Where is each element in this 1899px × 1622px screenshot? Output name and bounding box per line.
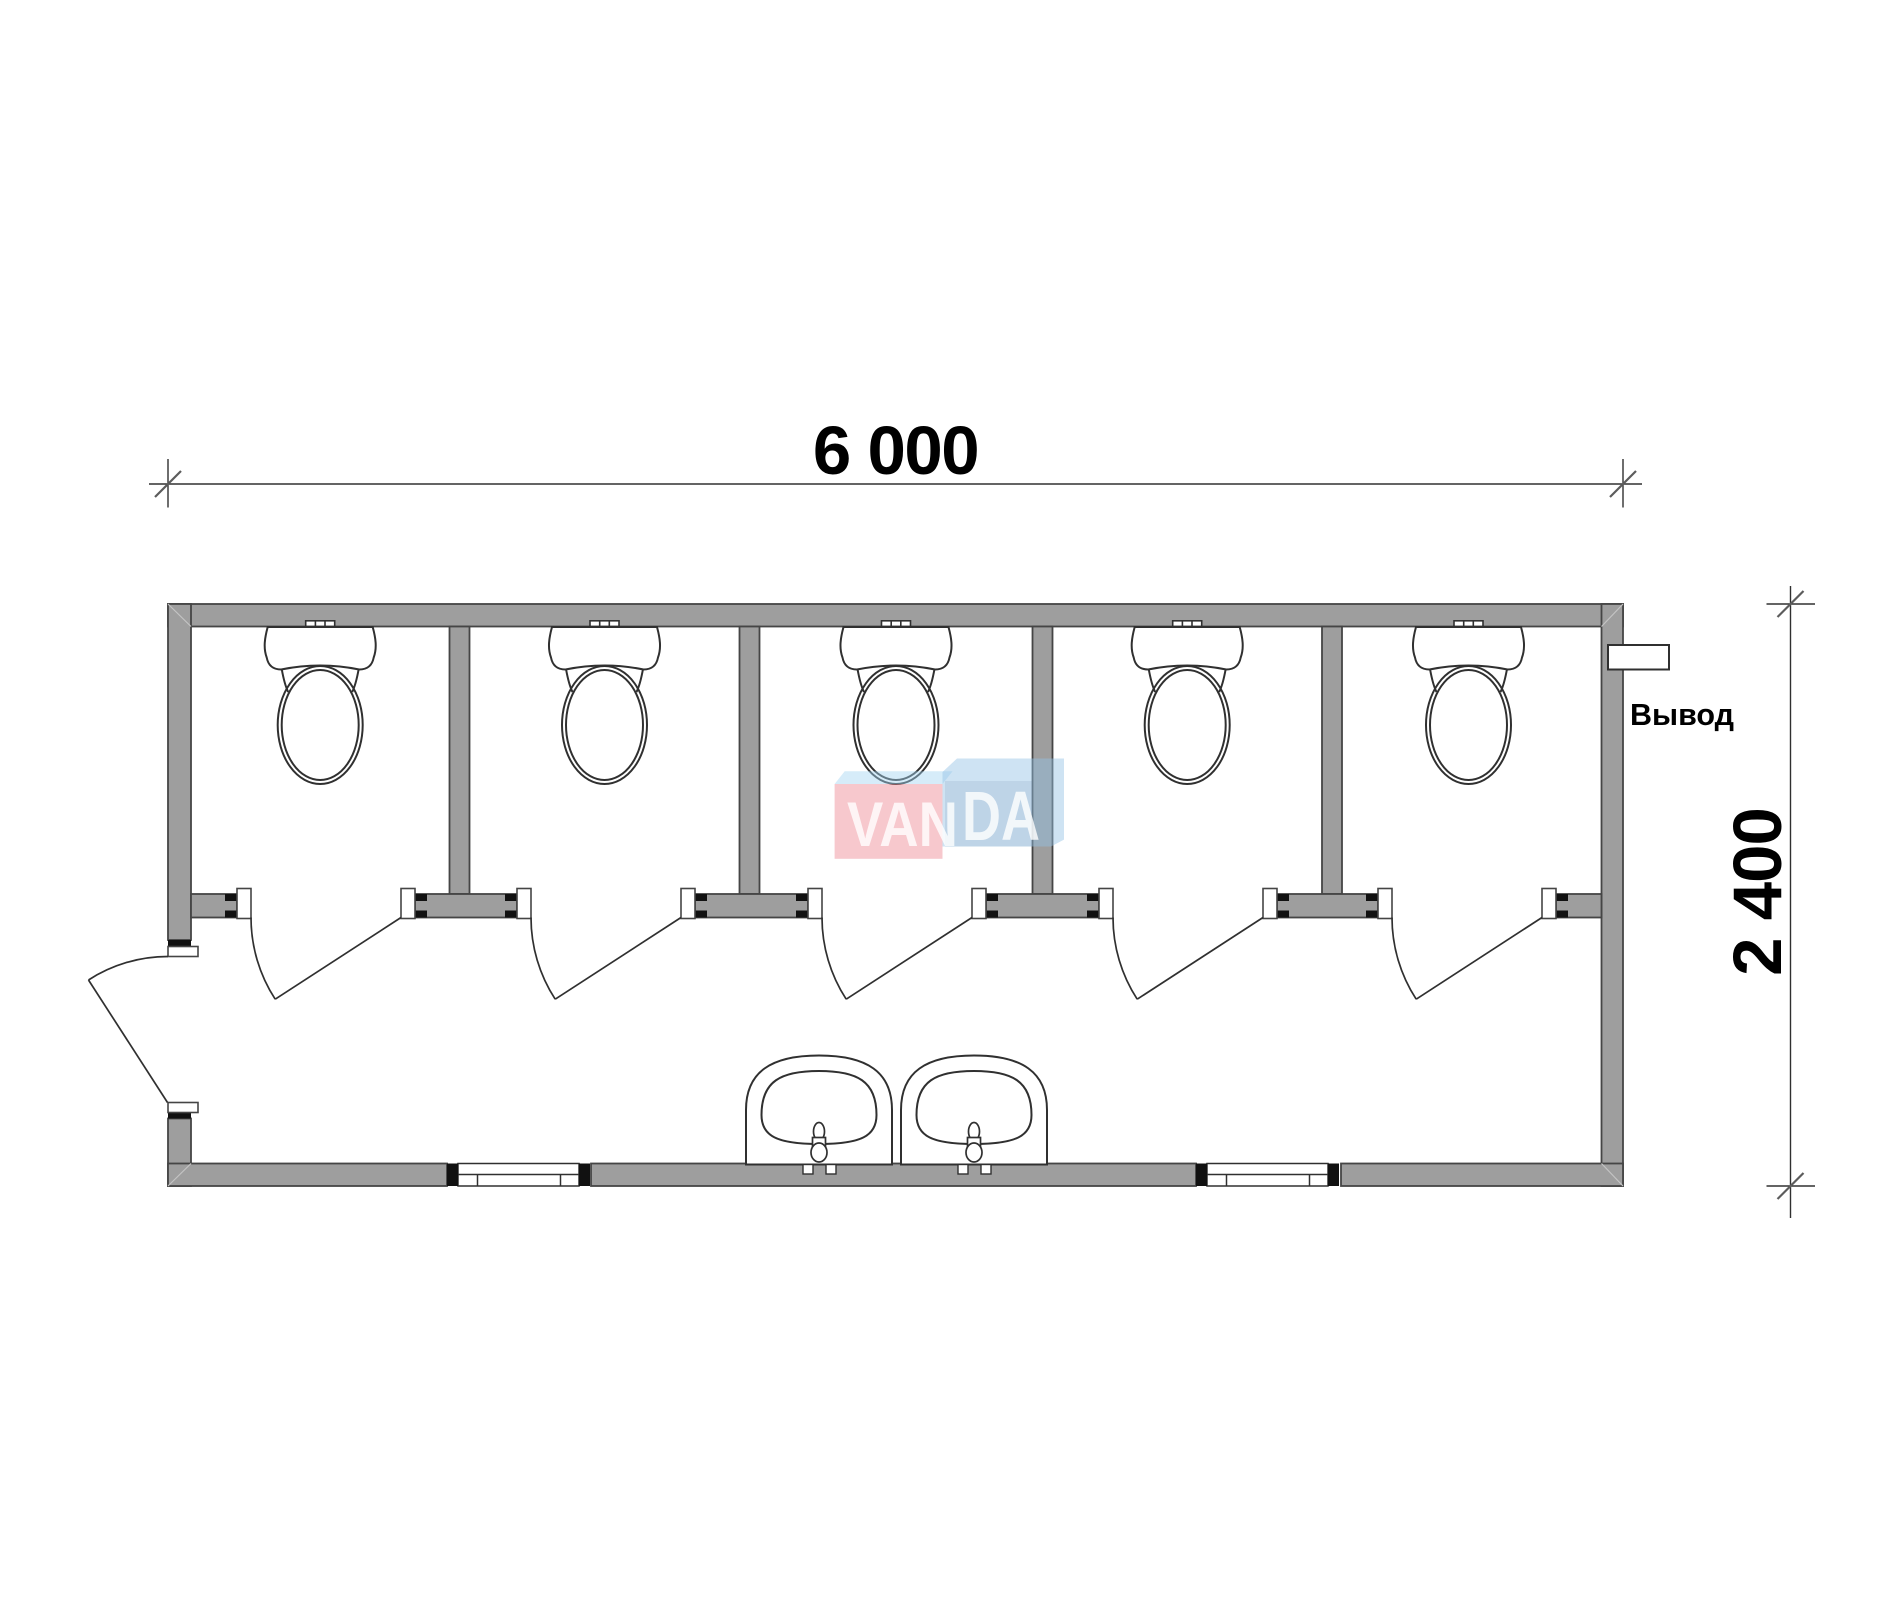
svg-text:Вывод: Вывод — [1630, 698, 1734, 732]
svg-text:DA: DA — [962, 777, 1040, 855]
svg-text:VAN: VAN — [847, 790, 958, 860]
svg-text:2 400: 2 400 — [1719, 808, 1796, 976]
svg-text:6 000: 6 000 — [813, 412, 978, 489]
